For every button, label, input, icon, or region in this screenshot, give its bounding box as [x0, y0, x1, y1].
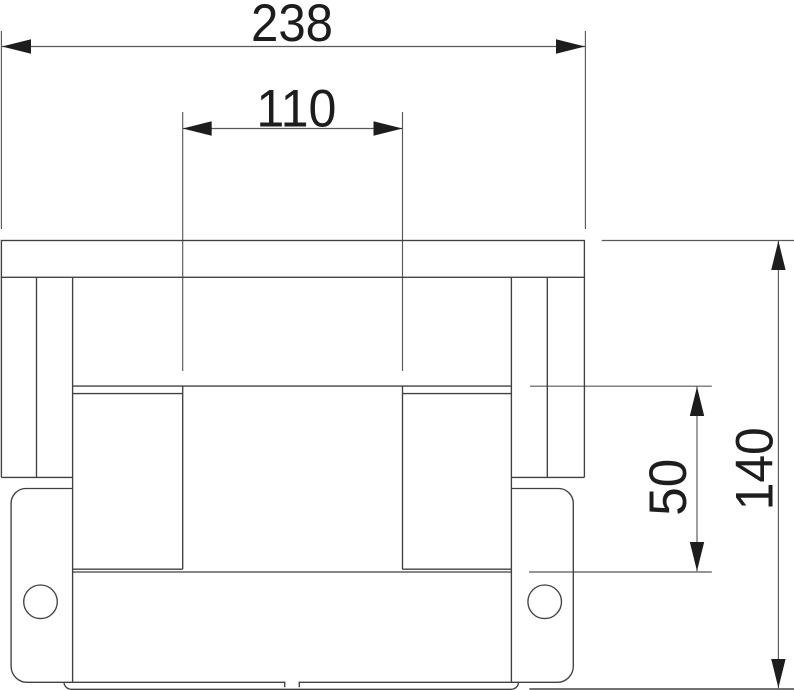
svg-text:50: 50: [639, 459, 698, 516]
svg-text:238: 238: [251, 0, 333, 53]
svg-text:140: 140: [726, 427, 785, 510]
svg-text:110: 110: [256, 80, 336, 139]
